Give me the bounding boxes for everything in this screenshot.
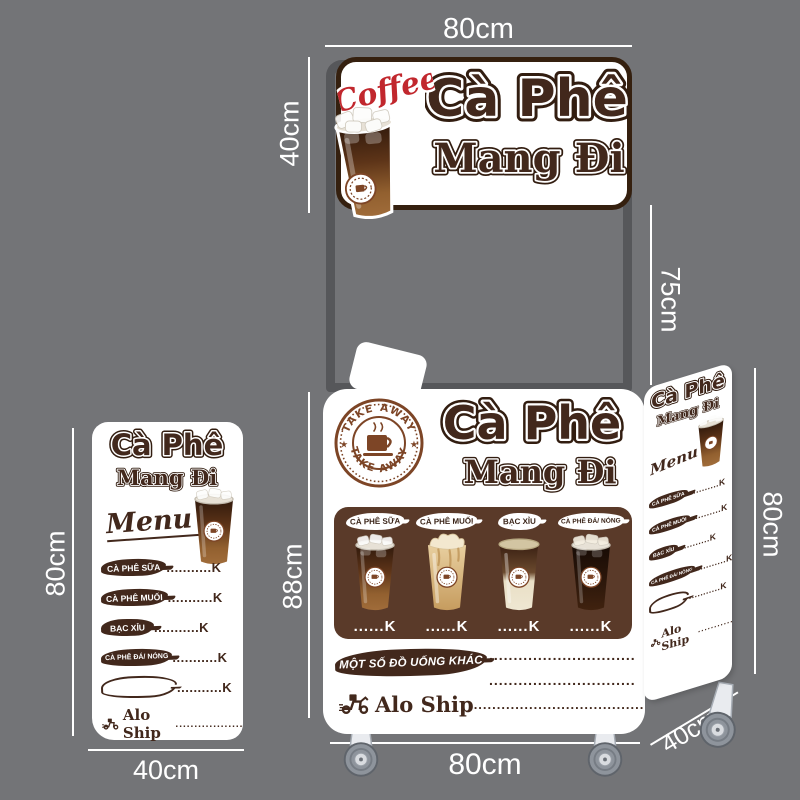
panel-ship-label: Alo Ship bbox=[123, 706, 176, 742]
panel-item-price: ...........K bbox=[172, 650, 227, 665]
delivery-scooter-icon bbox=[102, 715, 120, 733]
panel-item-price: ...........K bbox=[168, 590, 223, 605]
other-drinks-line-1: .............................. bbox=[489, 647, 635, 663]
cart-ship-row: Alo Ship ...............................… bbox=[339, 689, 644, 719]
menu-label: CÀ PHÊ MUỐI bbox=[416, 512, 478, 530]
panel-menu-word: Menu bbox=[105, 503, 201, 542]
side-item-price: ...........K bbox=[690, 501, 728, 523]
side-item-price: ...........K bbox=[689, 580, 727, 602]
dim-left-panel-height: 80cm bbox=[41, 537, 72, 597]
svg-text:Cà Phê: Cà Phê bbox=[443, 396, 621, 450]
panel-item-label: CÀ PHÊ MUỐI bbox=[101, 587, 168, 606]
panel-item-label-empty bbox=[101, 675, 178, 700]
other-drinks-line-2: .............................. bbox=[489, 672, 635, 688]
side-menu-word: Menu bbox=[649, 442, 699, 479]
delivery-scooter-icon bbox=[650, 635, 661, 650]
panel-menu-item: CÀ PHÊ ĐÁ/ NÓNG ...........K bbox=[101, 642, 236, 672]
menu-column-bac-xiu: BẠC XỈU ......K bbox=[484, 513, 554, 635]
menu-column-ca-phe-muoi: CÀ PHÊ MUỐI ......K bbox=[412, 513, 482, 635]
svg-text:Cà Phê: Cà Phê bbox=[111, 428, 224, 462]
other-drinks-label: MỘT SỐ ĐỒ UỐNG KHÁC bbox=[335, 646, 488, 678]
sign-title-mang-di: Mang Đi Mang Đi Mang Đi bbox=[429, 130, 629, 186]
side-panel-cup-image bbox=[694, 407, 728, 473]
menu-label: CÀ PHÊ ĐÁ/ NÓNG bbox=[558, 512, 624, 530]
panel-menu-item: CÀ PHÊ MUỐI ...........K bbox=[101, 582, 236, 612]
cart-title-ca-phe: Cà Phê Cà Phê Cà Phê bbox=[425, 393, 639, 453]
black-iced-coffee-cup-image bbox=[565, 532, 617, 612]
dim-sign-height: 40cm bbox=[275, 107, 306, 167]
side-item-price: ...........K bbox=[678, 531, 716, 553]
dim-line-pole-height bbox=[650, 205, 652, 385]
side-item-label: BẠC XỈU bbox=[649, 542, 679, 563]
right-side-panel: Cà Phê Cà Phê Cà Phê Mang Đi Mang Đi Man… bbox=[644, 362, 732, 703]
panel-menu-item: BẠC XỈU ...........K bbox=[101, 612, 236, 642]
salt-cream-coffee-cup-image bbox=[421, 532, 473, 612]
menu-price: ......K bbox=[570, 618, 613, 635]
cart-title-mang-di: Mang Đi Mang Đi Mang Đi bbox=[445, 449, 635, 495]
ship-label: Alo Ship bbox=[375, 692, 474, 717]
panel-item-price: ...........K bbox=[166, 560, 221, 575]
dim-line-sign-width bbox=[325, 45, 632, 47]
svg-text:Mang Đi: Mang Đi bbox=[463, 453, 616, 491]
left-menu-panel: Cà Phê Cà Phê Cà Phê Mang Đi Mang Đi Man… bbox=[92, 422, 243, 740]
side-item-price: ...........K bbox=[695, 552, 733, 574]
take-away-stamp-logo: TAKE AWAY TAKE AWAY ★ ★ bbox=[333, 397, 425, 489]
panel-title-ca-phe: Cà Phê Cà Phê Cà Phê bbox=[96, 424, 239, 464]
caster-wheel-side bbox=[690, 676, 750, 757]
dim-line-left-panel-width bbox=[88, 749, 244, 751]
design-mockup-canvas: 80cm 40cm 75cm 88cm 80cm 80cm 40cm 80cm … bbox=[0, 0, 800, 800]
side-ship-label: Alo Ship bbox=[661, 616, 698, 653]
dim-line-left-panel-height bbox=[72, 428, 74, 736]
panel-item-label: CÀ PHÊ SỮA bbox=[101, 557, 167, 576]
panel-ship-row: Alo Ship ........................ bbox=[102, 706, 243, 742]
side-item-price: ...........K bbox=[688, 476, 726, 498]
svg-text:★: ★ bbox=[410, 440, 418, 449]
menu-price: ......K bbox=[354, 618, 397, 635]
panel-item-label: BẠC XỈU bbox=[101, 618, 155, 637]
dim-line-sign-height bbox=[308, 57, 310, 213]
panel-menu-item-empty: ...........K bbox=[101, 672, 236, 702]
menu-label: CÀ PHÊ SỮA bbox=[346, 512, 404, 530]
sign-title-ca-phe: Cà Phê Cà Phê Cà Phê bbox=[425, 66, 630, 132]
panel-ship-dots: ........................ bbox=[175, 719, 243, 730]
delivery-scooter-icon bbox=[339, 692, 371, 716]
panel-item-price: ...........K bbox=[154, 620, 209, 635]
main-cart-front: TAKE AWAY TAKE AWAY ★ ★ Cà Phê Cà Phê Cà… bbox=[323, 389, 645, 734]
ship-dots: ..................................... bbox=[474, 697, 645, 712]
dim-cart-width: 80cm bbox=[425, 748, 545, 782]
panel-menu-item: CÀ PHÊ SỮA ...........K bbox=[101, 552, 236, 582]
menu-price: ......K bbox=[426, 618, 469, 635]
cart-menu-board: CÀ PHÊ SỮA ......K bbox=[334, 507, 632, 639]
panel-menu-list: CÀ PHÊ SỮA ...........K CÀ PHÊ MUỐI ....… bbox=[101, 552, 236, 702]
iced-milk-coffee-cup-image bbox=[349, 532, 401, 612]
side-menu-list: CÀ PHÊ SỮA ...........K CÀ PHÊ MUỐI ....… bbox=[649, 468, 727, 622]
bac-xiu-cup-image bbox=[493, 532, 545, 612]
panel-item-label: CÀ PHÊ ĐÁ/ NÓNG bbox=[101, 647, 173, 666]
svg-text:★: ★ bbox=[340, 440, 348, 449]
panel-item-price: ...........K bbox=[177, 680, 232, 695]
dim-cart-height: 88cm bbox=[278, 550, 309, 610]
side-ship-dots: ........................ bbox=[698, 615, 732, 634]
menu-label: BẠC XỈU bbox=[497, 513, 540, 531]
svg-text:Mang Đi: Mang Đi bbox=[433, 135, 624, 182]
svg-text:Cà Phê: Cà Phê bbox=[426, 69, 628, 129]
menu-column-ca-phe-da-nong: CÀ PHÊ ĐÁ/ NÓNG ......K bbox=[556, 513, 626, 635]
sign-iced-coffee-cup-image bbox=[314, 101, 421, 224]
menu-price: ......K bbox=[498, 618, 541, 635]
dim-right-panel-height: 80cm bbox=[757, 492, 788, 552]
dim-left-panel-width: 40cm bbox=[106, 755, 226, 786]
dim-pole-height: 75cm bbox=[655, 267, 686, 327]
menu-column-ca-phe-sua: CÀ PHÊ SỮA ......K bbox=[340, 513, 410, 635]
dim-sign-width: 80cm bbox=[325, 13, 632, 46]
